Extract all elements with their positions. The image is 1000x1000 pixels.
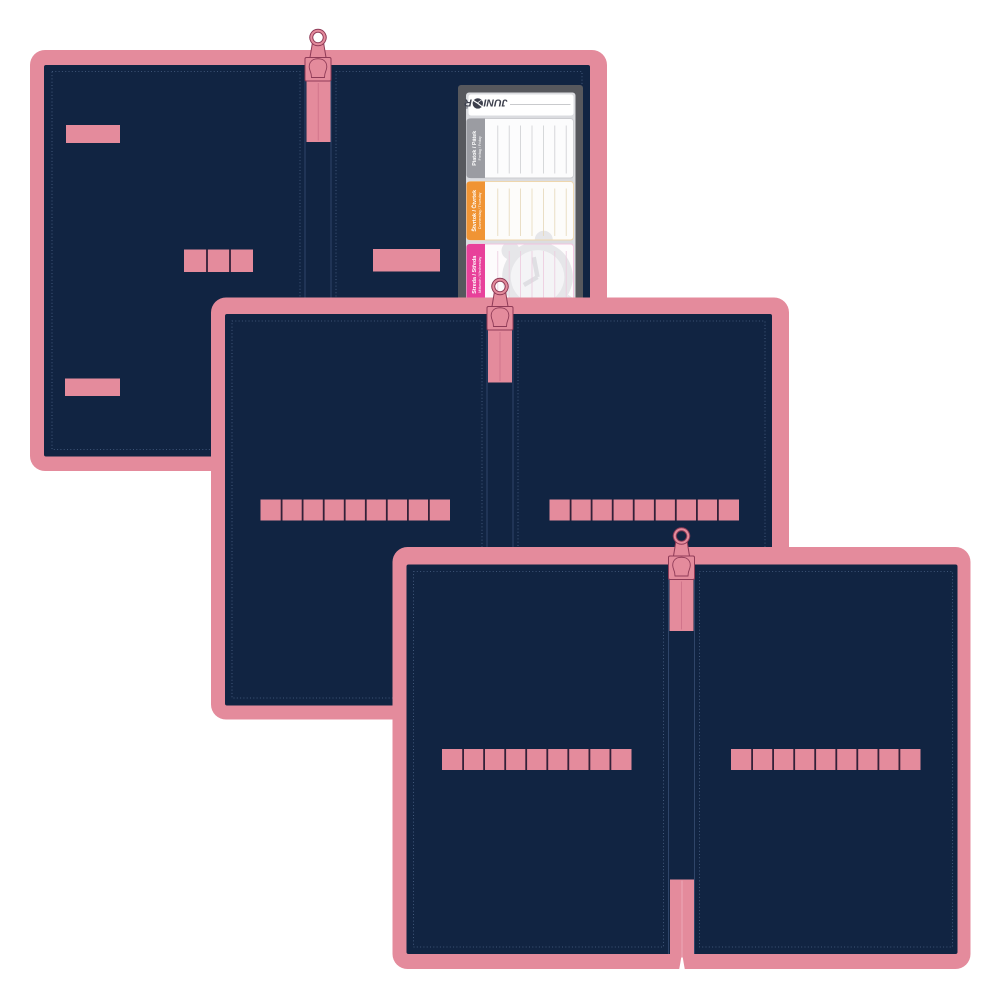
svg-text:Donnerstag / Thursday: Donnerstag / Thursday [478, 192, 482, 229]
svg-text:Piatok / Pátek: Piatok / Pátek [472, 131, 478, 166]
svg-text:Štvrtok / Čtvrtek: Štvrtok / Čtvrtek [470, 190, 478, 232]
svg-text:Mittwoch / Wednesday: Mittwoch / Wednesday [478, 257, 482, 293]
svg-text:Freitag / Friday: Freitag / Friday [478, 136, 482, 160]
svg-text:®: ® [465, 105, 468, 110]
svg-text:Streda / Středa: Streda / Středa [472, 255, 478, 294]
svg-text:JUNI: JUNI [483, 97, 508, 109]
